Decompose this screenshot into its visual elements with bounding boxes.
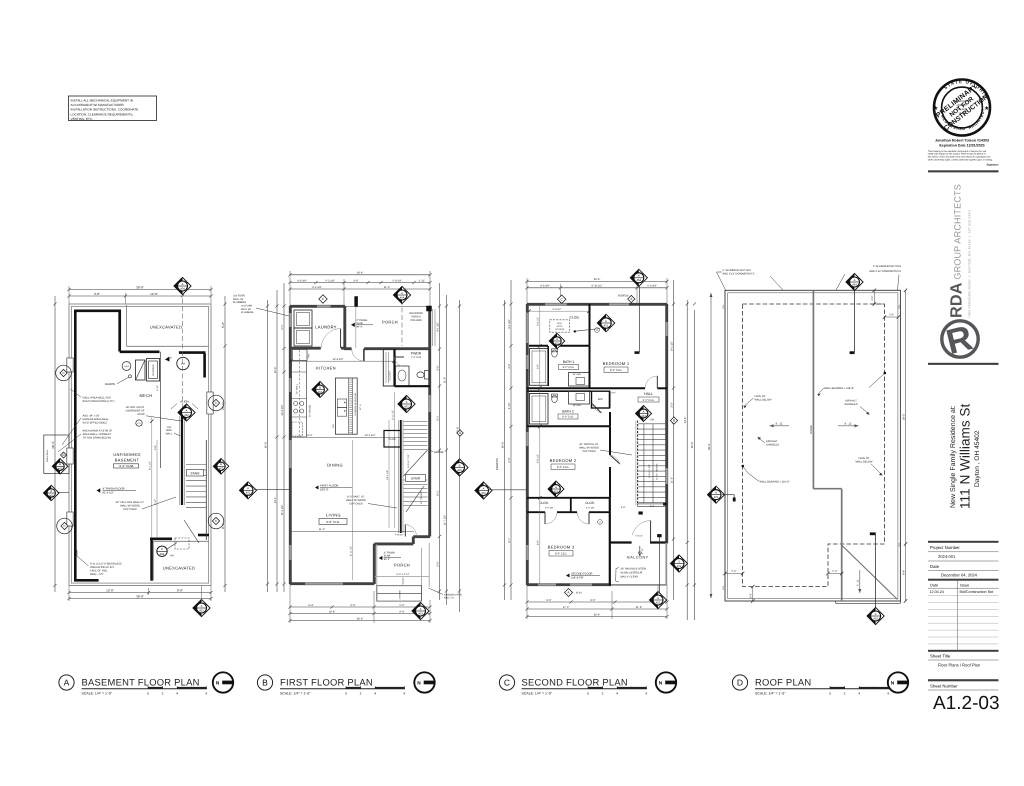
svg-text:4: 4 <box>176 691 178 695</box>
svg-text:24'-1": 24'-1" <box>274 497 277 504</box>
svg-text:3'-5": 3'-5" <box>537 364 540 369</box>
svg-text:2'-10": 2'-10" <box>508 403 511 410</box>
svg-text:5'-8 3/4": 5'-8 3/4" <box>647 285 657 288</box>
svg-text:2'-11": 2'-11" <box>419 279 425 282</box>
svg-text:A: A <box>657 597 659 600</box>
svg-text:5'-2 1/4": 5'-2 1/4" <box>325 279 335 282</box>
svg-text:DW: DW <box>332 423 335 428</box>
svg-text:S: S <box>678 560 680 563</box>
svg-text:8 : 12: 8 : 12 <box>776 422 783 425</box>
svg-text:PWDR: PWDR <box>411 351 422 355</box>
svg-text:99'-4": 99'-4" <box>356 325 362 328</box>
svg-text:CLOSET: CLOSET <box>389 370 392 381</box>
svg-text:12'-4 1/2": 12'-4 1/2" <box>333 358 344 361</box>
svg-text:7462 PARAGON ROAD | DAYTON,: 7462 PARAGON ROAD | DAYTON, OH 45459 | 9… <box>968 210 972 318</box>
svg-text:38'-8": 38'-8" <box>594 613 601 616</box>
svg-text:16 R @ 7 3/4": 16 R @ 7 3/4" <box>648 464 651 478</box>
svg-text:LOCATION, CLEARANCE REQUIREMEN: LOCATION, CLEARANCE REQUIREMENTS, <box>71 112 134 116</box>
svg-text:Date: Date <box>930 564 940 569</box>
svg-text:solely with regard to this pro: solely with regard to this project. RDA … <box>928 153 987 156</box>
svg-text:401: 401 <box>49 494 54 497</box>
svg-text:5" ALUMINUM GUTTER: 5" ALUMINUM GUTTER <box>723 269 751 272</box>
svg-text:38'-8": 38'-8" <box>594 278 601 281</box>
svg-text:UNEXCAVATED: UNEXCAVATED <box>150 325 182 330</box>
svg-text:454: 454 <box>852 283 857 286</box>
svg-text:CLOS.: CLOS. <box>569 316 579 320</box>
svg-text:-9'-2" SLAB: -9'-2" SLAB <box>119 464 134 468</box>
svg-text:A: A <box>643 410 645 413</box>
svg-text:FACE OF: FACE OF <box>858 457 870 460</box>
svg-text:5'-0" DR: 5'-0" DR <box>545 507 554 510</box>
svg-text:8'-1 1/2": 8'-1 1/2" <box>670 341 673 351</box>
svg-text:A: A <box>854 279 856 282</box>
svg-text:COUNTER W/ SEATING: COUNTER W/ SEATING <box>354 393 357 416</box>
svg-text:A: A <box>50 490 52 493</box>
svg-text:3'-8": 3'-8" <box>154 445 157 450</box>
svg-text:453: 453 <box>873 617 878 620</box>
svg-text:B: B <box>673 419 675 423</box>
svg-text:3'-2": 3'-2" <box>508 363 511 368</box>
svg-text:SD: SD <box>599 521 602 524</box>
svg-text:403: 403 <box>457 469 462 472</box>
svg-text:PORCH: PORCH <box>394 563 410 568</box>
svg-text:VENTING, ETC.: VENTING, ETC. <box>71 117 94 121</box>
svg-text:453: 453 <box>554 490 559 493</box>
svg-text:TO FDN DRAIN BELOW: TO FDN DRAIN BELOW <box>83 437 112 440</box>
svg-text:12'-8": 12'-8" <box>106 588 114 592</box>
svg-text:SUMP: SUMP <box>124 365 130 368</box>
svg-text:Dayton , OH 45402: Dayton , OH 45402 <box>974 430 981 487</box>
svg-text:LEDGE: LEDGE <box>434 450 444 454</box>
svg-text:38'-4": 38'-4" <box>51 441 55 449</box>
svg-text:UNEXCAVATED: UNEXCAVATED <box>163 566 195 571</box>
svg-text:5'-4": 5'-4" <box>508 457 511 462</box>
svg-text:A: A <box>401 292 403 295</box>
svg-text:A: A <box>420 608 422 611</box>
svg-text:A: A <box>556 338 558 341</box>
svg-text:451: 451 <box>656 601 661 604</box>
svg-text:4'-8 3/4": 4'-8 3/4" <box>540 285 550 288</box>
svg-text:BASEMENT: BASEMENT <box>115 458 140 463</box>
svg-text:KITCHEN: KITCHEN <box>316 366 336 371</box>
svg-text:STL: STL <box>137 422 142 425</box>
svg-text:C: C <box>161 547 163 551</box>
svg-text:8 : 12: 8 : 12 <box>857 579 860 586</box>
svg-text:AND 2"x3" DOWNSPOUTS: AND 2"x3" DOWNSPOUTS <box>869 270 901 273</box>
svg-text:11'-2": 11'-2" <box>670 477 673 483</box>
svg-text:402: 402 <box>481 492 486 495</box>
svg-text:WALL BELOW: WALL BELOW <box>856 460 874 463</box>
svg-text:7'-2" CLG: 7'-2" CLG <box>411 356 421 359</box>
svg-text:111 N Williams St: 111 N Williams St <box>958 404 973 509</box>
svg-text:30" RANGE: 30" RANGE <box>309 404 312 417</box>
svg-text:4: 4 <box>374 691 376 695</box>
svg-text:A: A <box>483 487 485 490</box>
svg-text:3'-3": 3'-3" <box>670 402 673 407</box>
svg-text:HALL: HALL <box>644 392 653 396</box>
svg-text:5'-0" x 4'-11": 5'-0" x 4'-11" <box>396 573 409 576</box>
svg-text:A: A <box>605 320 607 323</box>
svg-text:404: 404 <box>180 287 185 290</box>
svg-text:2: 2 <box>162 691 164 695</box>
svg-text:D.S.: D.S. <box>722 585 725 590</box>
svg-text:5'-0": 5'-0" <box>399 604 404 607</box>
svg-text:B: B <box>220 463 222 466</box>
svg-text:FAN: FAN <box>308 353 311 358</box>
svg-text:5'-8 1/4": 5'-8 1/4" <box>392 279 402 282</box>
svg-text:9'-1/2": 9'-1/2" <box>156 385 159 391</box>
svg-text:2 RISERS: 2 RISERS <box>399 589 402 599</box>
svg-text:SPEC CONDITIONS (TYP.): SPEC CONDITIONS (TYP.) <box>83 400 115 403</box>
svg-text:10'-5 1/2": 10'-5 1/2" <box>365 434 376 437</box>
svg-text:LAUNDRY: LAUNDRY <box>315 325 337 330</box>
svg-text:LIVING: LIVING <box>326 513 341 518</box>
svg-text:PULL: PULL <box>557 322 563 325</box>
svg-text:ELEV: ELEV <box>576 592 582 595</box>
svg-text:8 : 12: 8 : 12 <box>641 548 644 554</box>
svg-text:0: 0 <box>345 691 347 695</box>
svg-text:2: 2 <box>360 691 362 695</box>
svg-text:UNFINISHED: UNFINISHED <box>113 452 140 457</box>
svg-text:0: 0 <box>829 691 831 695</box>
svg-text:38'-8": 38'-8" <box>357 617 364 620</box>
svg-text:SCALE: 1/4" = 1'-0": SCALE: 1/4" = 1'-0" <box>82 691 113 695</box>
svg-text:A: A <box>638 275 640 278</box>
svg-text:404: 404 <box>160 552 165 556</box>
svg-text:SCALE: 1/4" = 1'-0": SCALE: 1/4" = 1'-0" <box>280 691 311 695</box>
svg-text:SD: SD <box>596 329 599 332</box>
svg-text:8'-0" CLG.: 8'-0" CLG. <box>562 416 574 419</box>
svg-text:24'-6": 24'-6" <box>684 417 687 424</box>
svg-text:A: A <box>64 678 70 688</box>
svg-text:Date: Date <box>930 582 938 587</box>
svg-text:WALL W/ WOOD: WALL W/ WOOD <box>120 505 140 508</box>
svg-text:Sheet Title: Sheet Title <box>930 654 951 659</box>
svg-text:10 1/2" TREADS: 10 1/2" TREADS <box>656 463 659 480</box>
svg-text:9'-0" CLG.: 9'-0" CLG. <box>555 553 568 556</box>
svg-text:N: N <box>417 680 421 686</box>
svg-text:2'-0": 2'-0" <box>832 570 837 573</box>
svg-text:STAIR: STAIR <box>190 471 200 475</box>
svg-text:TYP.: TYP. <box>170 555 175 558</box>
svg-text:STAIR: STAIR <box>137 413 144 416</box>
svg-text:PORCH: PORCH <box>382 320 398 325</box>
svg-text:2'-0": 2'-0" <box>750 593 753 598</box>
svg-text:42" H: 42" H <box>359 404 362 410</box>
svg-text:A: A <box>406 401 408 404</box>
svg-text:LIN.: LIN. <box>598 397 604 401</box>
svg-text:EGRESS: EGRESS <box>618 295 629 298</box>
svg-text:SCALE: 1/4" = 1'-0": SCALE: 1/4" = 1'-0" <box>522 691 553 695</box>
svg-text:11'-7 1/2": 11'-7 1/2" <box>443 515 446 526</box>
svg-text:Bid/Construction Set: Bid/Construction Set <box>960 590 994 594</box>
svg-text:Expiration Date 12/31/2025: Expiration Date 12/31/2025 <box>939 143 984 147</box>
svg-text:This drawing is the aesthetic: This drawing is the aesthetic instrument… <box>928 150 987 153</box>
svg-text:38'-4": 38'-4" <box>708 443 711 450</box>
svg-text:WALL: WALL <box>166 433 173 436</box>
svg-text:452: 452 <box>641 415 646 418</box>
svg-text:9'-4": 9'-4" <box>308 604 313 607</box>
svg-text:5'-0" DR: 5'-0" DR <box>586 507 595 510</box>
svg-text:0: 0 <box>147 691 149 695</box>
svg-text:D.S.: D.S. <box>898 304 901 309</box>
svg-text:D.S.: D.S. <box>898 542 901 547</box>
svg-text:4'-1 1/2": 4'-1 1/2" <box>436 322 439 332</box>
svg-text:9'-10 1/2": 9'-10 1/2" <box>592 285 603 288</box>
svg-text:11'-2": 11'-2" <box>384 286 390 289</box>
svg-text:0: 0 <box>587 691 589 695</box>
svg-text:36" VAN.: 36" VAN. <box>573 404 582 407</box>
svg-text:A: A <box>201 605 203 608</box>
svg-text:SECOND FLOOR: SECOND FLOOR <box>571 573 593 576</box>
svg-text:WALL BELOW: WALL BELOW <box>755 399 773 402</box>
svg-text:4'-9": 4'-9" <box>902 570 905 575</box>
svg-text:9'-0" CLG.: 9'-0" CLG. <box>326 520 340 524</box>
svg-text:9'-1 1/2": 9'-1 1/2" <box>149 461 152 470</box>
svg-text:8: 8 <box>887 691 889 695</box>
svg-text:8'-4": 8'-4" <box>221 523 225 529</box>
svg-text:9'-0" CLG.: 9'-0" CLG. <box>610 369 623 372</box>
svg-text:C: C <box>504 678 510 688</box>
svg-text:Jonathan Robert Tolson #14303: Jonathan Robert Tolson #14303 <box>935 138 989 142</box>
svg-text:N: N <box>891 680 895 686</box>
svg-text:11'-9": 11'-9" <box>443 377 446 383</box>
svg-text:8 : 12: 8 : 12 <box>845 422 852 425</box>
svg-text:CLOS.: CLOS. <box>539 501 549 505</box>
svg-text:2'-6": 2'-6" <box>650 505 655 508</box>
svg-text:B: B <box>319 386 321 389</box>
svg-text:WALL, TYP.: WALL, TYP. <box>90 573 104 576</box>
svg-text:ACCORDANCE W/ MANUFACTURER: ACCORDANCE W/ MANUFACTURER <box>71 103 125 107</box>
svg-text:2: 2 <box>844 691 846 695</box>
svg-text:A: A <box>247 487 249 490</box>
svg-text:453: 453 <box>318 391 323 394</box>
svg-text:118'-8 7/8": 118'-8 7/8" <box>571 576 584 579</box>
svg-text:MAX 4" CLEAR: MAX 4" CLEAR <box>621 575 639 578</box>
svg-text:12'-9": 12'-9" <box>274 367 277 374</box>
svg-text:12.04.24: 12.04.24 <box>930 590 944 594</box>
svg-text:18'-8": 18'-8" <box>329 610 336 613</box>
svg-text:20'-0 1/2": 20'-0 1/2" <box>281 404 284 415</box>
svg-text:★: ★ <box>984 105 989 112</box>
svg-text:404: 404 <box>400 296 405 299</box>
svg-text:2'-0": 2'-0" <box>889 314 894 317</box>
svg-text:BASEMENT FLOOR PLAN: BASEMENT FLOOR PLAN <box>82 677 200 688</box>
svg-text:CLOS.: CLOS. <box>585 501 595 505</box>
svg-text:B: B <box>262 678 268 688</box>
svg-text:45'-8": 45'-8" <box>501 442 504 449</box>
svg-text:8'-6": 8'-6" <box>307 434 312 437</box>
svg-text:42" TALL FDN WALL HT.: 42" TALL FDN WALL HT. <box>116 501 145 504</box>
svg-text:Sheet Number: Sheet Number <box>930 684 958 689</box>
svg-text:99'-4": 99'-4" <box>384 558 390 561</box>
svg-text:N: N <box>659 680 663 686</box>
svg-text:452: 452 <box>555 342 560 345</box>
svg-text:EGRESS: EGRESS <box>495 458 499 470</box>
svg-text:36" WALL: 36" WALL <box>296 383 299 394</box>
svg-text:AND 2"x3" DOWNSPOUTS: AND 2"x3" DOWNSPOUTS <box>723 273 755 276</box>
svg-text:D.S.: D.S. <box>722 304 725 309</box>
svg-text:8: 8 <box>645 691 647 695</box>
svg-text:11'-6": 11'-6" <box>319 528 325 531</box>
svg-text:8'-0": 8'-0" <box>590 599 595 602</box>
svg-text:403: 403 <box>199 609 204 612</box>
svg-text:December 04, 2024: December 04, 2024 <box>941 573 978 578</box>
svg-text:RADON: RADON <box>105 382 115 386</box>
svg-text:454: 454 <box>637 279 642 282</box>
svg-text:BEDROOM 3: BEDROOM 3 <box>548 545 575 550</box>
svg-text:other ownership rights, unless: other ownership rights, unless otherwise… <box>928 159 993 162</box>
svg-text:38'-8": 38'-8" <box>136 285 144 289</box>
svg-text:3'-0": 3'-0" <box>621 506 626 509</box>
svg-text:6'-7": 6'-7" <box>508 537 511 542</box>
svg-text:4: 4 <box>616 691 618 695</box>
svg-text:38'-8": 38'-8" <box>136 594 144 598</box>
svg-text:A: A <box>715 492 717 495</box>
svg-text:CAP OVER: CAP OVER <box>582 450 595 453</box>
svg-text:FURNACE: FURNACE <box>152 364 155 376</box>
svg-text:ROOF PLAN: ROOF PLAN <box>755 677 811 688</box>
svg-text:3'-11 1/2": 3'-11 1/2" <box>391 410 394 420</box>
svg-text:BEDROOM 1: BEDROOM 1 <box>603 361 630 366</box>
svg-text:403: 403 <box>418 612 423 615</box>
svg-text:9'-2 1/4": 9'-2 1/4" <box>312 286 322 289</box>
svg-text:A: A <box>555 486 557 489</box>
svg-text:91'-4 1/2": 91'-4 1/2" <box>103 491 114 494</box>
svg-text:9'-8": 9'-8" <box>94 292 100 296</box>
svg-text:8: 8 <box>205 691 207 695</box>
svg-text:B: B <box>459 464 461 467</box>
svg-text:A: A <box>182 283 184 286</box>
svg-text:BEDROOM 2: BEDROOM 2 <box>550 458 577 463</box>
svg-text:2024-001: 2024-001 <box>938 554 956 559</box>
svg-text:401: 401 <box>246 492 251 495</box>
svg-text:INSTALLATION INSTRUCTIONS. COO: INSTALLATION INSTRUCTIONS. COORDINATE <box>71 108 139 112</box>
svg-text:8'-1": 8'-1" <box>436 490 439 495</box>
svg-text:21'-8": 21'-8" <box>636 606 643 609</box>
svg-text:403: 403 <box>219 468 224 471</box>
svg-text:100'-0": 100'-0" <box>320 487 329 491</box>
svg-text:45'-8": 45'-8" <box>264 442 267 449</box>
svg-text:Floor Plans / Roof Plan: Floor Plans / Roof Plan <box>938 663 981 668</box>
svg-text:RDA GROUP ARCHITECTS: RDA GROUP ARCHITECTS <box>948 184 966 318</box>
svg-text:ASPHALT: ASPHALT <box>766 440 778 443</box>
svg-text:A: A <box>186 409 188 412</box>
svg-text:9'-0" CLG.: 9'-0" CLG. <box>557 466 570 469</box>
svg-text:3'-8": 3'-8" <box>353 279 358 282</box>
svg-text:CAP OVER: CAP OVER <box>123 508 136 511</box>
svg-text:8'-0": 8'-0" <box>546 599 551 602</box>
svg-text:2'-0": 2'-0" <box>871 295 874 300</box>
svg-text:CLOS: CLOS <box>388 438 395 441</box>
svg-text:BATH 2: BATH 2 <box>562 410 574 414</box>
svg-text:3'-5": 3'-5" <box>436 365 439 370</box>
svg-text:452: 452 <box>184 414 189 417</box>
svg-text:5'-0": 5'-0" <box>436 561 439 566</box>
svg-text:8'-11 1/2": 8'-11 1/2" <box>349 546 352 556</box>
svg-text:W/ STEPPED SIDES: W/ STEPPED SIDES <box>83 422 108 425</box>
svg-text:D: D <box>170 356 172 359</box>
svg-text:B: B <box>59 463 61 466</box>
svg-text:8'-8": 8'-8" <box>177 588 183 592</box>
svg-text:17'-0": 17'-0" <box>563 606 570 609</box>
svg-text:COLUMN: COLUMN <box>410 319 421 322</box>
svg-text:2'-6": 2'-6" <box>611 392 616 395</box>
svg-text:Issue: Issue <box>960 582 969 587</box>
svg-text:5'-1": 5'-1" <box>281 324 284 329</box>
svg-text:451: 451 <box>677 565 682 568</box>
svg-text:DN: DN <box>651 418 655 421</box>
svg-text:INSTALL ALL MECHANICAL EQUIPME: INSTALL ALL MECHANICAL EQUIPMENT IN <box>71 99 133 103</box>
svg-text:11" TREADS: 11" TREADS <box>420 491 423 504</box>
svg-text:Project Number: Project Number <box>930 545 960 550</box>
svg-text:the author of this document an: the author of this document and shall re… <box>928 156 991 159</box>
svg-text:CAP OVER: CAP OVER <box>349 503 362 506</box>
svg-text:WALL BEARING = 118'-8": WALL BEARING = 118'-8" <box>760 480 790 483</box>
svg-text:4'-8 3/4": 4'-8 3/4" <box>297 279 307 282</box>
svg-text:ACCESS: ACCESS <box>555 328 565 331</box>
svg-text:9'-8": 9'-8" <box>399 610 404 613</box>
svg-text:STAIR: STAIR <box>411 477 421 481</box>
svg-text:6'-0": 6'-0" <box>537 540 540 545</box>
svg-text:A: A <box>875 613 877 616</box>
svg-text:9'-0" CLG.: 9'-0" CLG. <box>643 399 655 402</box>
svg-text:3'-0 1/2": 3'-0 1/2" <box>537 317 540 326</box>
svg-text:2'-6": 2'-6" <box>731 570 736 573</box>
svg-text:SECOND FLOOR PLAN: SECOND FLOOR PLAN <box>522 677 628 688</box>
svg-text:N: N <box>216 680 220 686</box>
svg-text:3'-1 1/2": 3'-1 1/2" <box>508 319 511 329</box>
svg-text:DINING: DINING <box>327 463 343 468</box>
svg-text:5" ALUMINUM GUTTER: 5" ALUMINUM GUTTER <box>873 265 901 268</box>
svg-text:4: 4 <box>858 691 860 695</box>
svg-text:SCALE: 1/4" = 1'-0": SCALE: 1/4" = 1'-0" <box>755 691 786 695</box>
svg-text:D: D <box>737 678 743 688</box>
svg-text:402: 402 <box>404 405 409 408</box>
svg-text:10'-1 1/2": 10'-1 1/2" <box>386 470 389 480</box>
svg-text:45'-8": 45'-8" <box>691 442 694 449</box>
svg-text:New Single Family Residence at: New Single Family Residence at: <box>949 405 957 508</box>
svg-text:W/ BALUSTERS AT: W/ BALUSTERS AT <box>621 571 644 574</box>
svg-text:26'-5": 26'-5" <box>902 413 905 420</box>
svg-text:1'-6 1/2": 1'-6 1/2" <box>635 535 643 538</box>
svg-text:ASPHALT: ASPHALT <box>845 400 857 403</box>
svg-text:36" RAILING SYSTEM: 36" RAILING SYSTEM <box>621 567 646 570</box>
svg-text:9'-6 1/2": 9'-6 1/2" <box>553 308 562 311</box>
svg-text:SHINGLES: SHINGLES <box>844 403 857 406</box>
svg-text:5'-0": 5'-0" <box>221 322 225 328</box>
svg-text:9'-4": 9'-4" <box>350 604 355 607</box>
svg-text:FACE OF: FACE OF <box>755 395 767 398</box>
svg-text:RIDGE: RIDGE <box>809 425 813 434</box>
svg-text:8: 8 <box>403 691 405 695</box>
svg-text:28'-8": 28'-8" <box>357 272 364 275</box>
svg-text:FIRST FLOOR PLAN: FIRST FLOOR PLAN <box>280 677 373 688</box>
svg-text:SHINGLES: SHINGLES <box>766 444 779 447</box>
svg-text:A1.2-03: A1.2-03 <box>933 693 1000 714</box>
svg-text:ALIGN: ALIGN <box>180 400 188 404</box>
svg-text:11'-1 1/2": 11'-1 1/2" <box>281 505 284 516</box>
svg-text:8'-0" CLG.: 8'-0" CLG. <box>563 366 575 369</box>
svg-text:ATTIC: ATTIC <box>557 325 564 328</box>
svg-text:BATH 1: BATH 1 <box>563 360 575 364</box>
svg-text:R311.7.8: R311.7.8 <box>444 597 454 600</box>
svg-text:403: 403 <box>58 468 63 471</box>
svg-text:5'-8 1/2": 5'-8 1/2" <box>537 454 540 463</box>
svg-text:PLUMBING: PLUMBING <box>241 311 254 314</box>
svg-text:WH: WH <box>181 363 185 366</box>
svg-text:BALCONY: BALCONY <box>627 555 648 559</box>
